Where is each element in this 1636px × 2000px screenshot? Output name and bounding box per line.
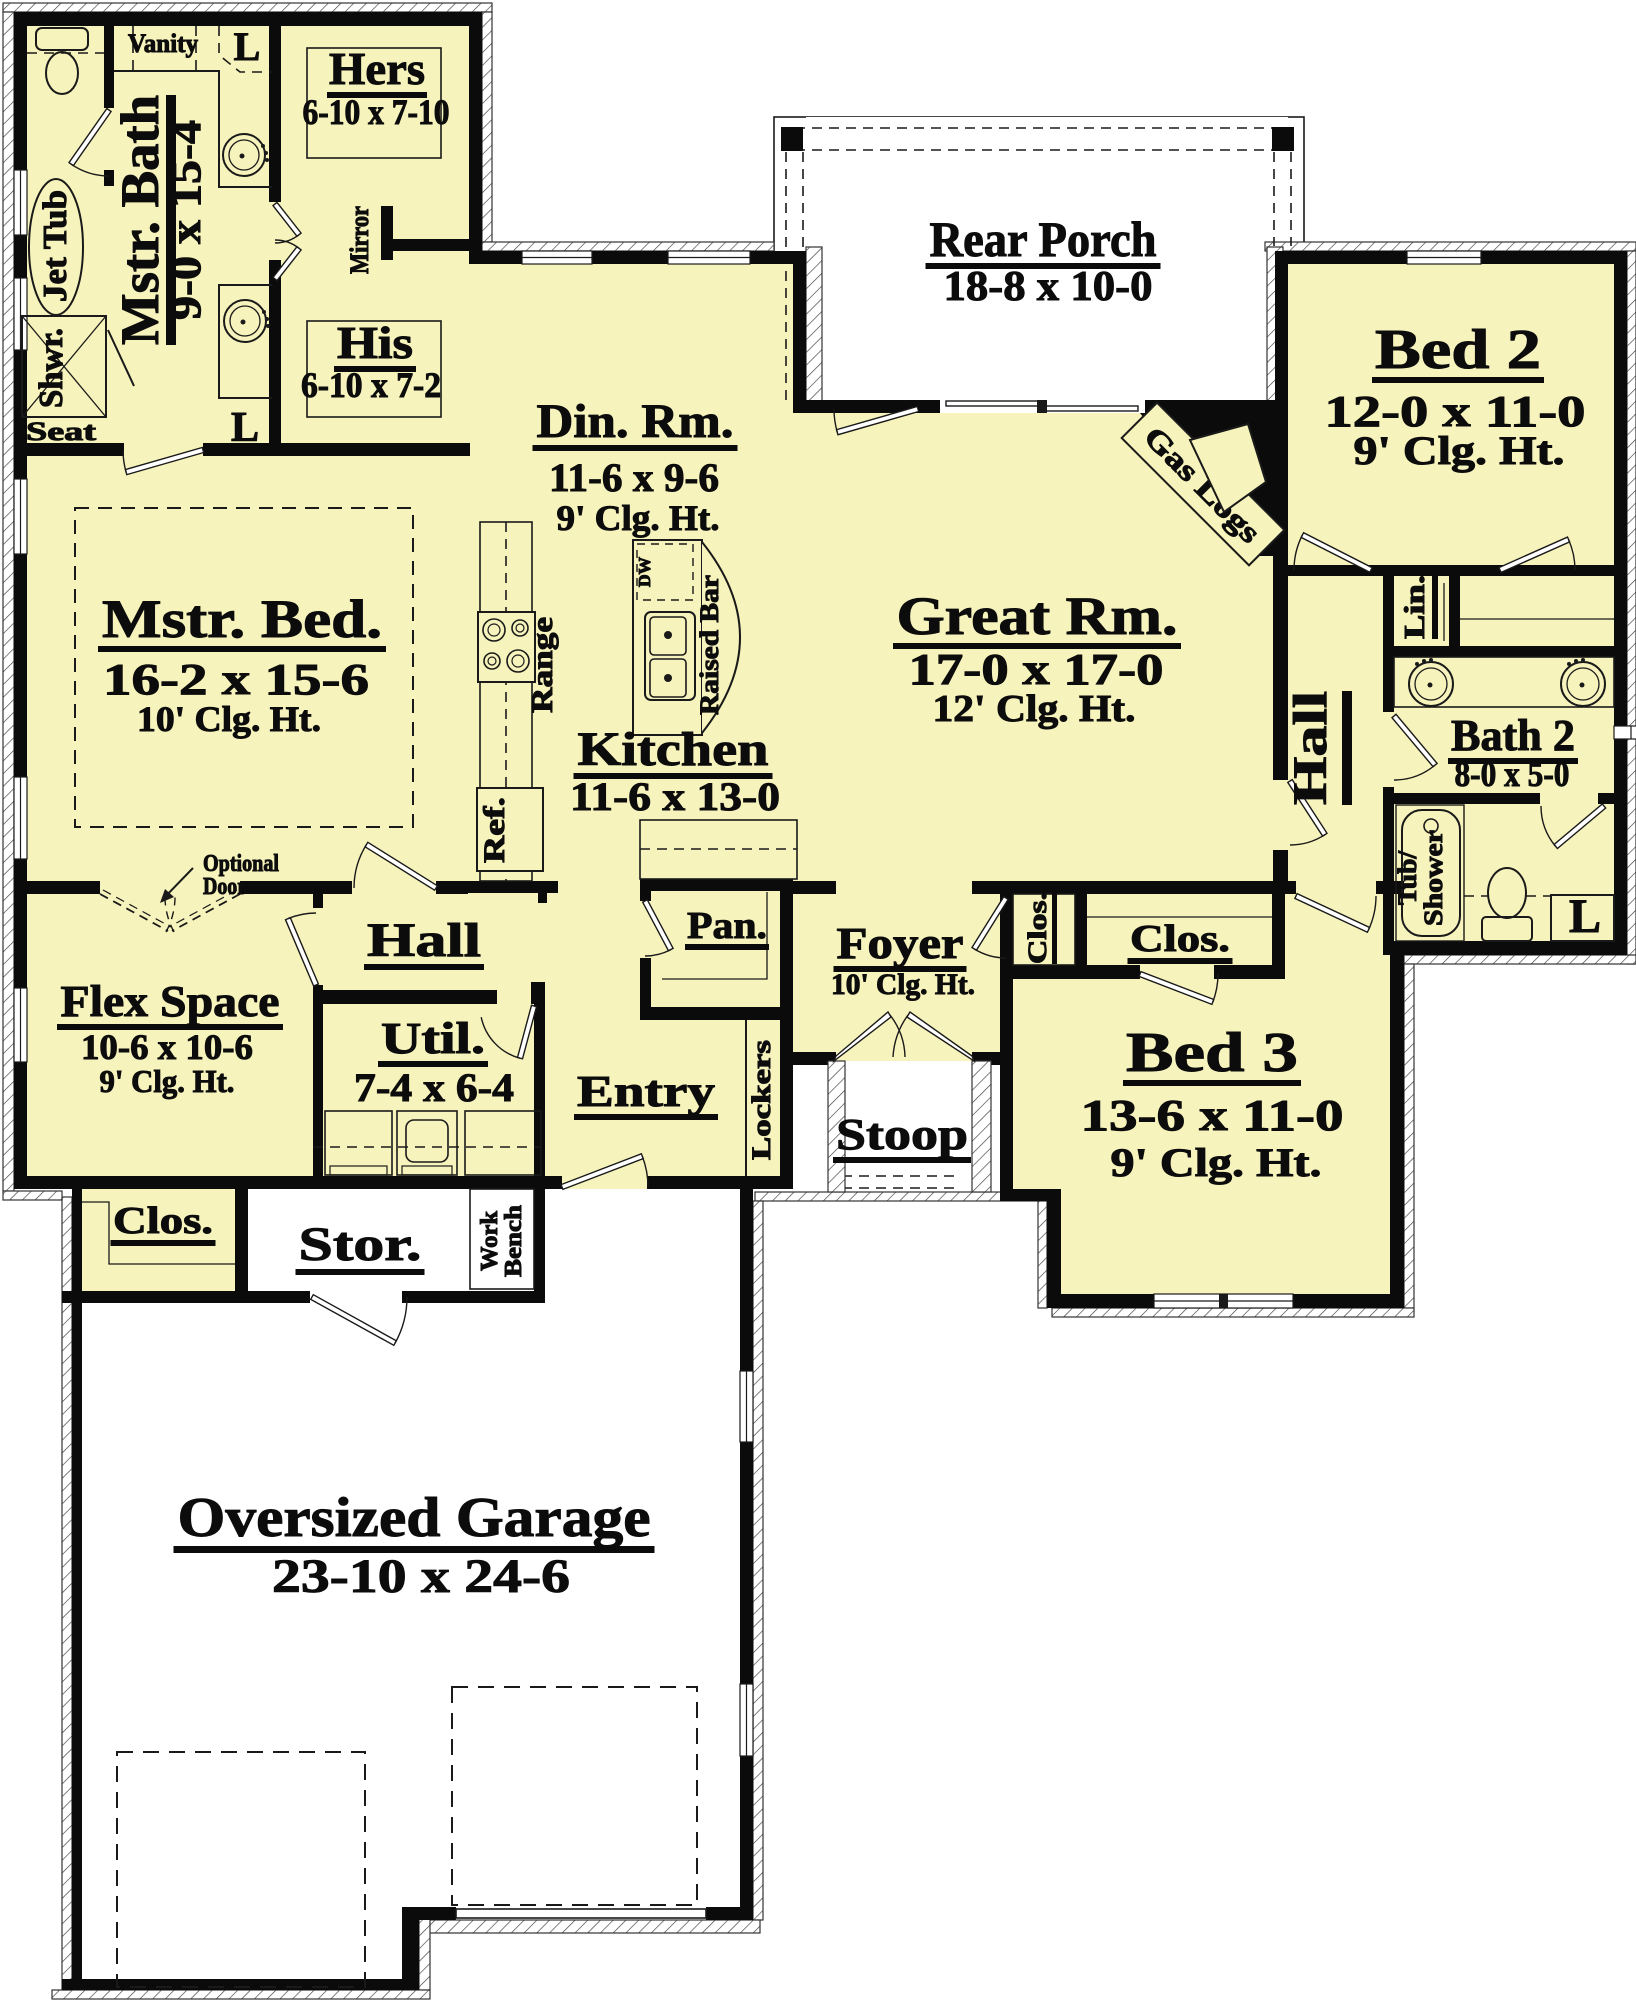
svg-text:17-0 x 17-0: 17-0 x 17-0	[909, 645, 1164, 694]
svg-text:Door: Door	[203, 874, 246, 900]
svg-text:L: L	[231, 405, 259, 451]
svg-text:9' Clg. Ht.: 9' Clg. Ht.	[557, 498, 720, 538]
svg-text:Clos.: Clos.	[1023, 892, 1052, 964]
svg-text:Lin.: Lin.	[1400, 575, 1431, 639]
svg-text:Clos.: Clos.	[1130, 918, 1230, 960]
svg-text:DW: DW	[635, 557, 654, 587]
svg-text:13-6 x 11-0: 13-6 x 11-0	[1081, 1091, 1344, 1140]
svg-text:10-6 x 10-6: 10-6 x 10-6	[81, 1027, 253, 1067]
svg-text:18-8 x 10-0: 18-8 x 10-0	[944, 264, 1153, 310]
svg-text:Bed 3: Bed 3	[1126, 1022, 1298, 1084]
svg-text:10' Clg. Ht.: 10' Clg. Ht.	[831, 968, 975, 1001]
svg-text:Din. Rm.: Din. Rm.	[537, 395, 734, 448]
svg-text:Raised Bar: Raised Bar	[695, 575, 724, 715]
svg-text:7-4 x 6-4: 7-4 x 6-4	[354, 1065, 514, 1110]
svg-text:Bench: Bench	[501, 1205, 527, 1277]
svg-text:Mirror: Mirror	[345, 206, 374, 274]
svg-text:Clos.: Clos.	[113, 1200, 213, 1242]
svg-text:9' Clg. Ht.: 9' Clg. Ht.	[1354, 428, 1565, 473]
svg-text:Great Rm.: Great Rm.	[897, 586, 1178, 646]
svg-text:Bath 2: Bath 2	[1451, 711, 1575, 760]
svg-text:Ref.: Ref.	[478, 797, 511, 863]
svg-text:Entry: Entry	[577, 1067, 715, 1116]
svg-text:8-0 x 5-0: 8-0 x 5-0	[1455, 754, 1570, 794]
svg-text:Stoop: Stoop	[836, 1110, 968, 1159]
svg-text:Work: Work	[477, 1210, 503, 1271]
svg-text:Flex Space: Flex Space	[61, 977, 280, 1026]
svg-text:L: L	[234, 24, 261, 69]
svg-text:Jet Tub: Jet Tub	[37, 190, 74, 302]
svg-text:Util.: Util.	[381, 1014, 485, 1063]
svg-text:11-6 x 9-6: 11-6 x 9-6	[549, 455, 719, 500]
svg-text:Stor.: Stor.	[299, 1218, 422, 1271]
svg-text:6-10 x 7-2: 6-10 x 7-2	[301, 365, 441, 405]
svg-text:Range: Range	[526, 617, 559, 713]
svg-text:Foyer: Foyer	[837, 919, 964, 968]
svg-text:9-0 x 15-4: 9-0 x 15-4	[161, 120, 210, 320]
svg-text:Vanity: Vanity	[128, 29, 198, 58]
svg-text:9' Clg. Ht.: 9' Clg. Ht.	[100, 1063, 235, 1099]
svg-text:Shwr.: Shwr.	[33, 328, 70, 408]
svg-text:Kitchen: Kitchen	[578, 723, 769, 776]
svg-text:Lockers: Lockers	[747, 1040, 776, 1160]
svg-text:9' Clg. Ht.: 9' Clg. Ht.	[1111, 1140, 1322, 1185]
svg-text:Seat: Seat	[26, 417, 96, 446]
svg-text:Bed 2: Bed 2	[1375, 319, 1541, 381]
svg-text:11-6 x 13-0: 11-6 x 13-0	[570, 774, 780, 819]
svg-text:Shower: Shower	[1419, 830, 1448, 926]
svg-text:Tub/: Tub/	[1393, 850, 1422, 905]
svg-text:12' Clg. Ht.: 12' Clg. Ht.	[933, 688, 1136, 730]
svg-text:Mstr. Bed.: Mstr. Bed.	[102, 589, 382, 649]
svg-text:Hers: Hers	[329, 43, 425, 94]
svg-text:Pan.: Pan.	[687, 905, 767, 947]
svg-text:Oversized Garage: Oversized Garage	[178, 1487, 651, 1549]
svg-text:Hall: Hall	[367, 914, 481, 967]
svg-text:10' Clg. Ht.: 10' Clg. Ht.	[137, 699, 321, 739]
svg-text:16-2 x 15-6: 16-2 x 15-6	[103, 655, 369, 704]
svg-text:His: His	[337, 317, 413, 368]
svg-text:L: L	[1569, 890, 1601, 943]
svg-text:Hall: Hall	[1284, 691, 1337, 805]
svg-text:6-10 x 7-10: 6-10 x 7-10	[303, 92, 450, 132]
svg-text:Rear Porch: Rear Porch	[930, 211, 1157, 267]
svg-text:23-10 x 24-6: 23-10 x 24-6	[272, 1550, 570, 1603]
